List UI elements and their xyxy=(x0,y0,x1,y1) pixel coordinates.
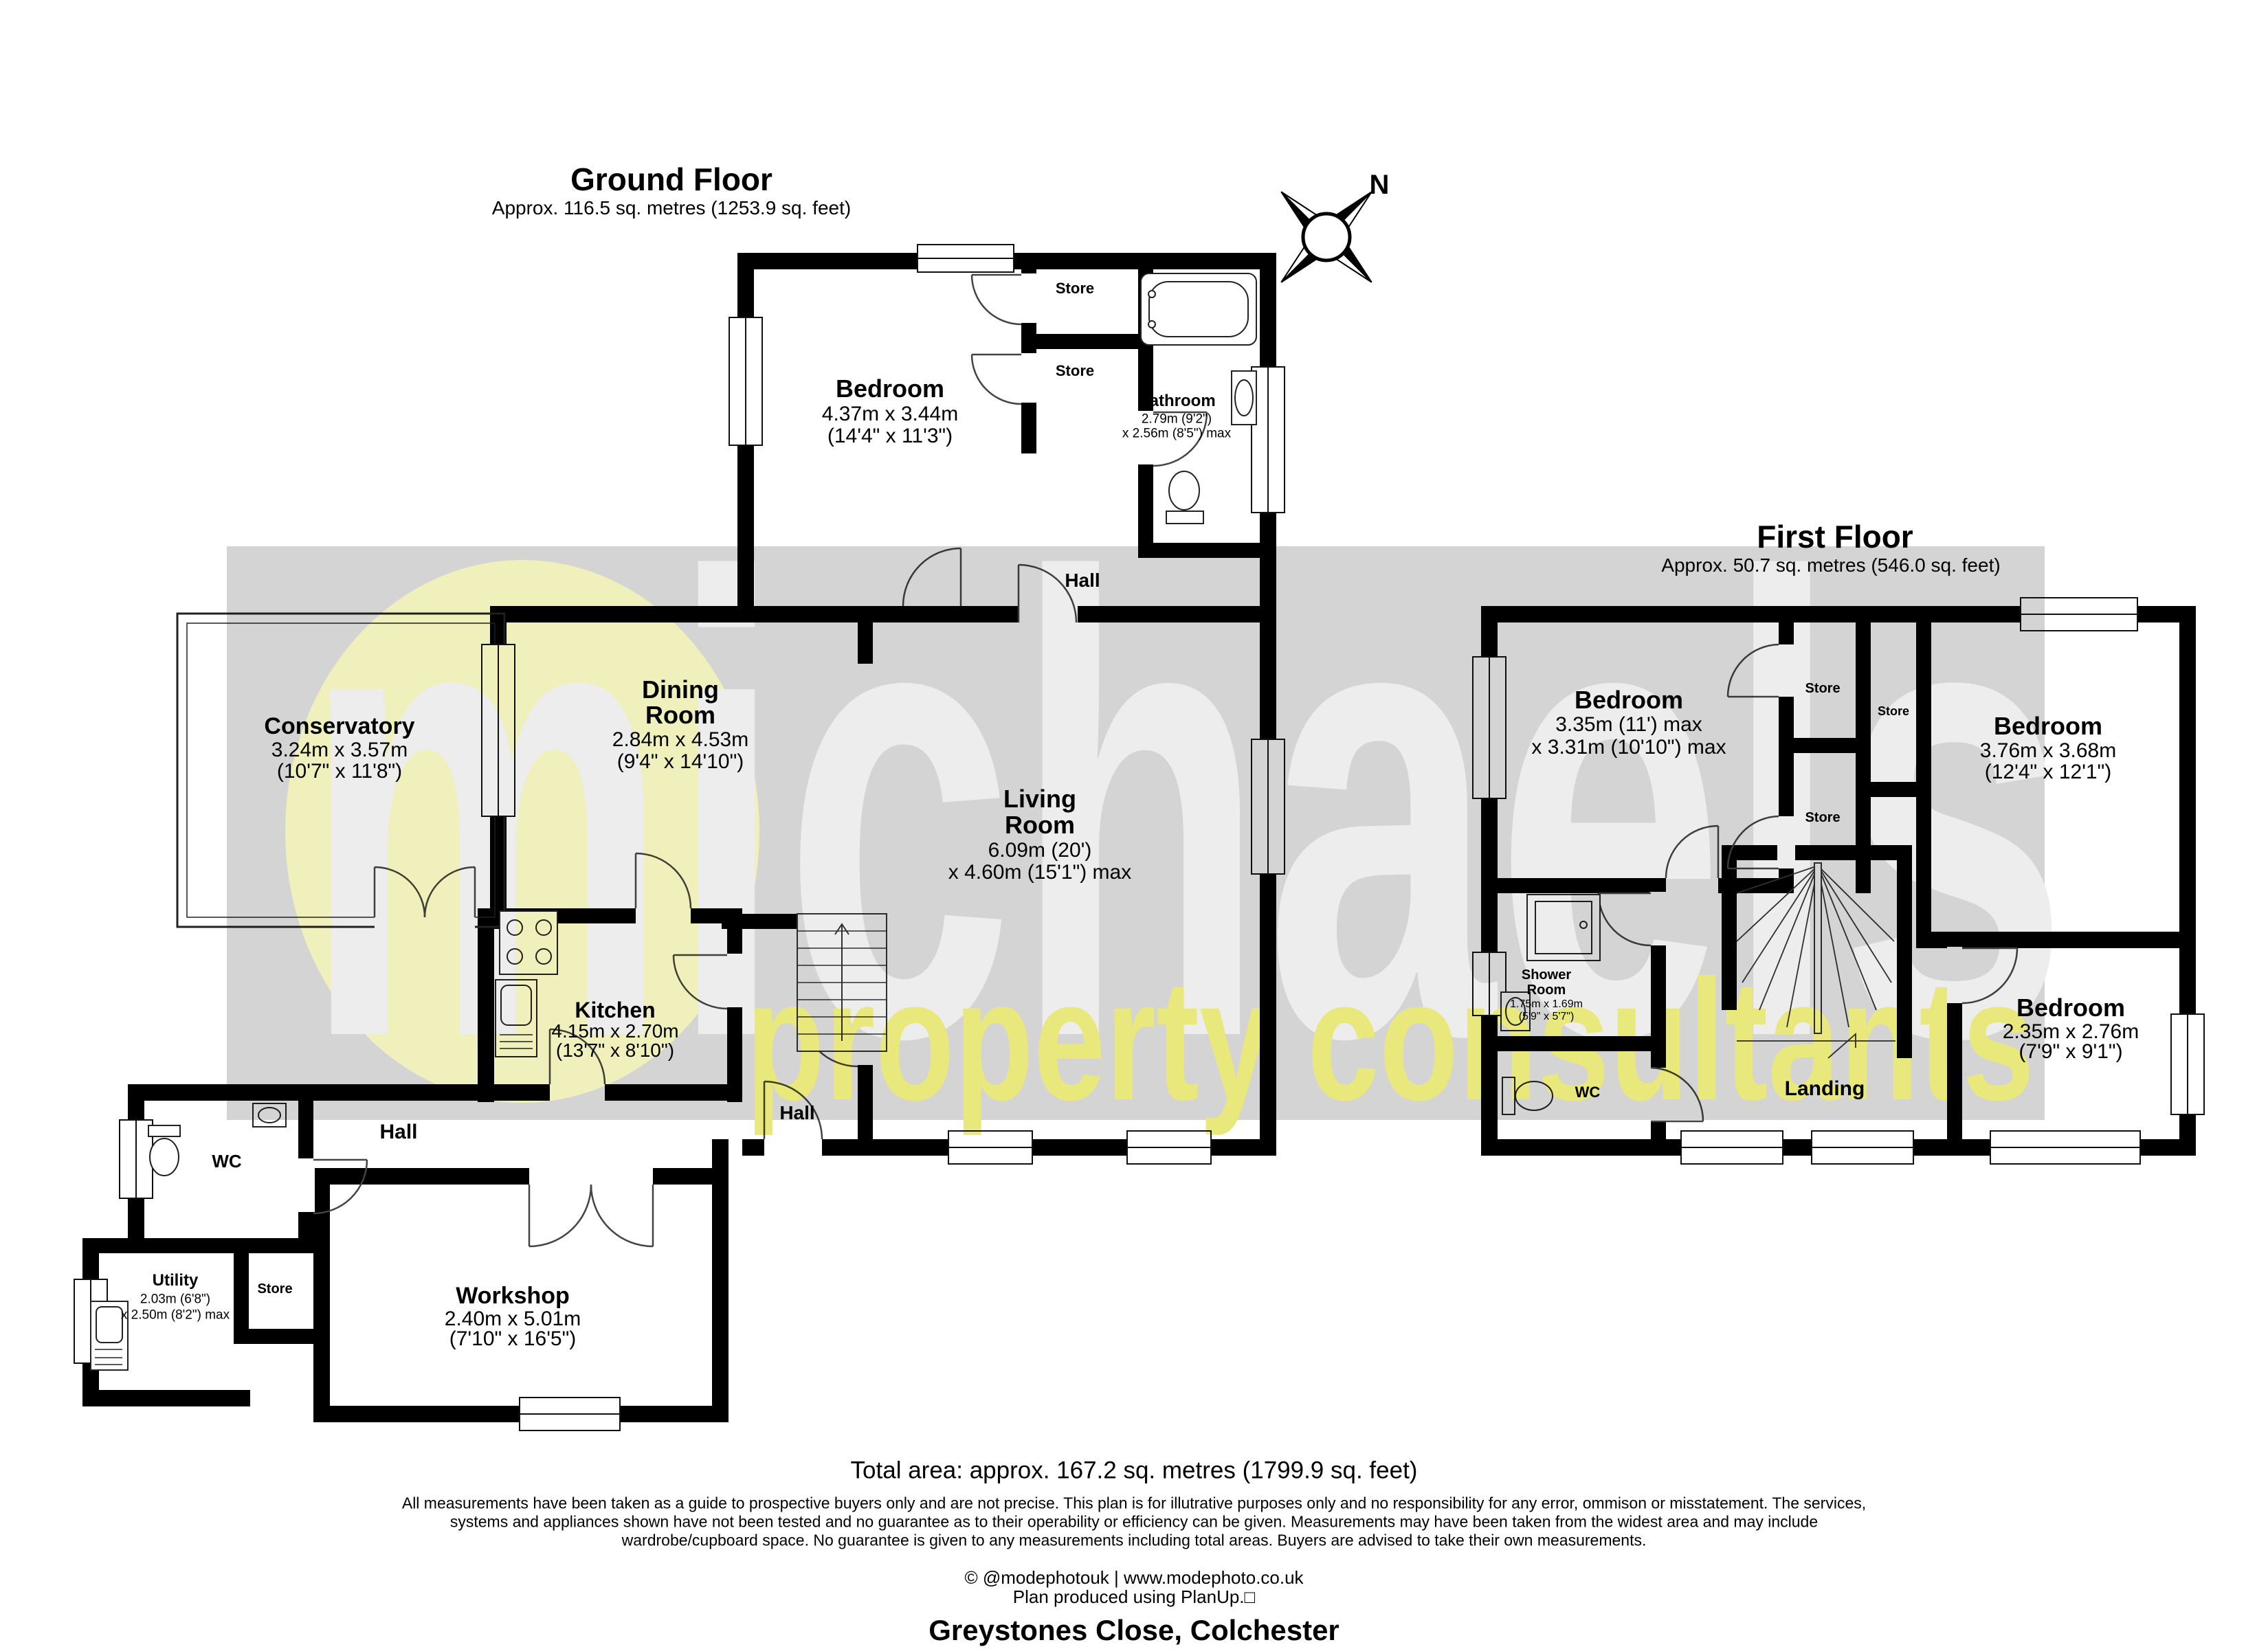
floorplan-page: N michaels property consultants Ground F… xyxy=(0,0,2268,1649)
room-dims2-bathroom: x 2.56m (8'5") max xyxy=(1122,427,1231,440)
room-dims-bedroom-ground: 4.37m x 3.44m xyxy=(822,404,958,425)
room-label-wc-ground: WC xyxy=(212,1152,241,1170)
room-label-hall-lower: Hall xyxy=(379,1122,417,1143)
room-dims2-living-room: x 4.60m (15'1") max xyxy=(948,862,1131,883)
disclaimer-line-2: systems and appliances shown have not be… xyxy=(450,1514,1818,1530)
room-dims2-shower-room: (5'9" x 5'7") xyxy=(1519,1011,1575,1022)
room-dims-workshop: 2.40m x 5.01m xyxy=(445,1309,581,1330)
room-label-hall-middle: Hall xyxy=(779,1103,814,1123)
room-label-dining-room-1: Dining xyxy=(642,677,719,702)
photo-credit: © @modephotouk | www.modephoto.co.uk xyxy=(964,1569,1303,1586)
room-label-shower-room-2: Room xyxy=(1527,983,1566,997)
room-label-hall-wing: Hall xyxy=(1065,571,1100,590)
room-label-bedroom-right: Bedroom xyxy=(1994,714,2102,739)
room-label-store-bottom-ff: Store xyxy=(1805,811,1840,824)
disclaimer-line-3: wardrobe/cupboard space. No guarantee is… xyxy=(622,1533,1647,1549)
room-label-conservatory: Conservatory xyxy=(264,715,414,738)
ground-floor-title: Ground Floor xyxy=(570,164,772,195)
property-address: Greystones Close, Colchester xyxy=(929,1616,1339,1645)
room-dims2-bedroom-right: (12'4" x 12'1") xyxy=(1985,762,2112,783)
room-dims-bathroom: 2.79m (9'2") xyxy=(1142,413,1212,426)
room-dims-conservatory: 3.24m x 3.57m xyxy=(271,740,408,761)
room-dims-bedroom-small: 2.35m x 2.76m xyxy=(2003,1022,2139,1042)
room-dims2-kitchen: (13'7" x 8'10") xyxy=(556,1041,674,1060)
room-label-shower-room-1: Shower xyxy=(1522,968,1571,982)
total-area-text: Total area: approx. 167.2 sq. metres (17… xyxy=(851,1459,1418,1483)
room-dims-shower-room: 1.75m x 1.69m xyxy=(1510,999,1583,1010)
room-dims2-dining-room: (9'4" x 14'10") xyxy=(617,752,744,772)
room-label-living-room-2: Room xyxy=(1005,813,1075,838)
first-floor-area: Approx. 50.7 sq. metres (546.0 sq. feet) xyxy=(1661,556,2000,575)
room-dims2-bedroom-left: x 3.31m (10'10") max xyxy=(1531,737,1726,758)
first-floor-title: First Floor xyxy=(1757,521,1913,552)
room-dims2-conservatory: (10'7" x 11'8") xyxy=(277,761,402,782)
room-label-dining-room-2: Room xyxy=(645,703,715,728)
room-label-landing: Landing xyxy=(1785,1079,1865,1099)
room-label-bathroom: Bathroom xyxy=(1137,393,1215,410)
labels-layer: Ground Floor Approx. 116.5 sq. metres (1… xyxy=(0,0,2268,1649)
room-label-bedroom-left: Bedroom xyxy=(1575,688,1683,713)
room-dims-kitchen: 4.15m x 2.70m xyxy=(551,1022,678,1041)
room-label-store-upper: Store xyxy=(1056,281,1094,296)
room-label-wc-first: WC xyxy=(1575,1085,1601,1100)
room-label-utility: Utility xyxy=(153,1272,199,1289)
room-label-workshop: Workshop xyxy=(456,1284,570,1308)
room-label-store-lower: Store xyxy=(1056,363,1094,379)
room-label-bedroom-small: Bedroom xyxy=(2016,996,2125,1020)
room-label-kitchen: Kitchen xyxy=(575,999,655,1021)
room-label-store-middle-ff: Store xyxy=(1878,705,1909,717)
room-dims-bedroom-right: 3.76m x 3.68m xyxy=(1980,741,2116,761)
room-dims2-utility: x 2.50m (8'2") max xyxy=(121,1309,230,1322)
room-label-store-annex: Store xyxy=(257,1282,292,1296)
ground-floor-area: Approx. 116.5 sq. metres (1253.9 sq. fee… xyxy=(492,199,851,218)
room-dims-dining-room: 2.84m x 4.53m xyxy=(612,730,748,750)
room-dims2-workshop: (7'10" x 16'5") xyxy=(449,1329,577,1349)
disclaimer-line-1: All measurements have been taken as a gu… xyxy=(402,1496,1866,1512)
software-credit: Plan produced using PlanUp.□ xyxy=(1013,1588,1256,1606)
room-label-living-room-1: Living xyxy=(1003,787,1076,811)
room-label-bedroom-ground: Bedroom xyxy=(836,377,944,401)
room-dims2-bedroom-ground: (14'4" x 11'3") xyxy=(827,426,953,447)
room-d ims-living-room: 6.09m (20') xyxy=(988,840,1092,861)
room-label-store-top-ff: Store xyxy=(1805,682,1840,695)
room-dims-utility: 2.03m (6'8") xyxy=(140,1293,210,1306)
room-dims-bedroom-left: 3.35m (11') max xyxy=(1555,715,1702,735)
room-dims2-bedroom-small: (7'9" x 9'1") xyxy=(2019,1042,2122,1062)
